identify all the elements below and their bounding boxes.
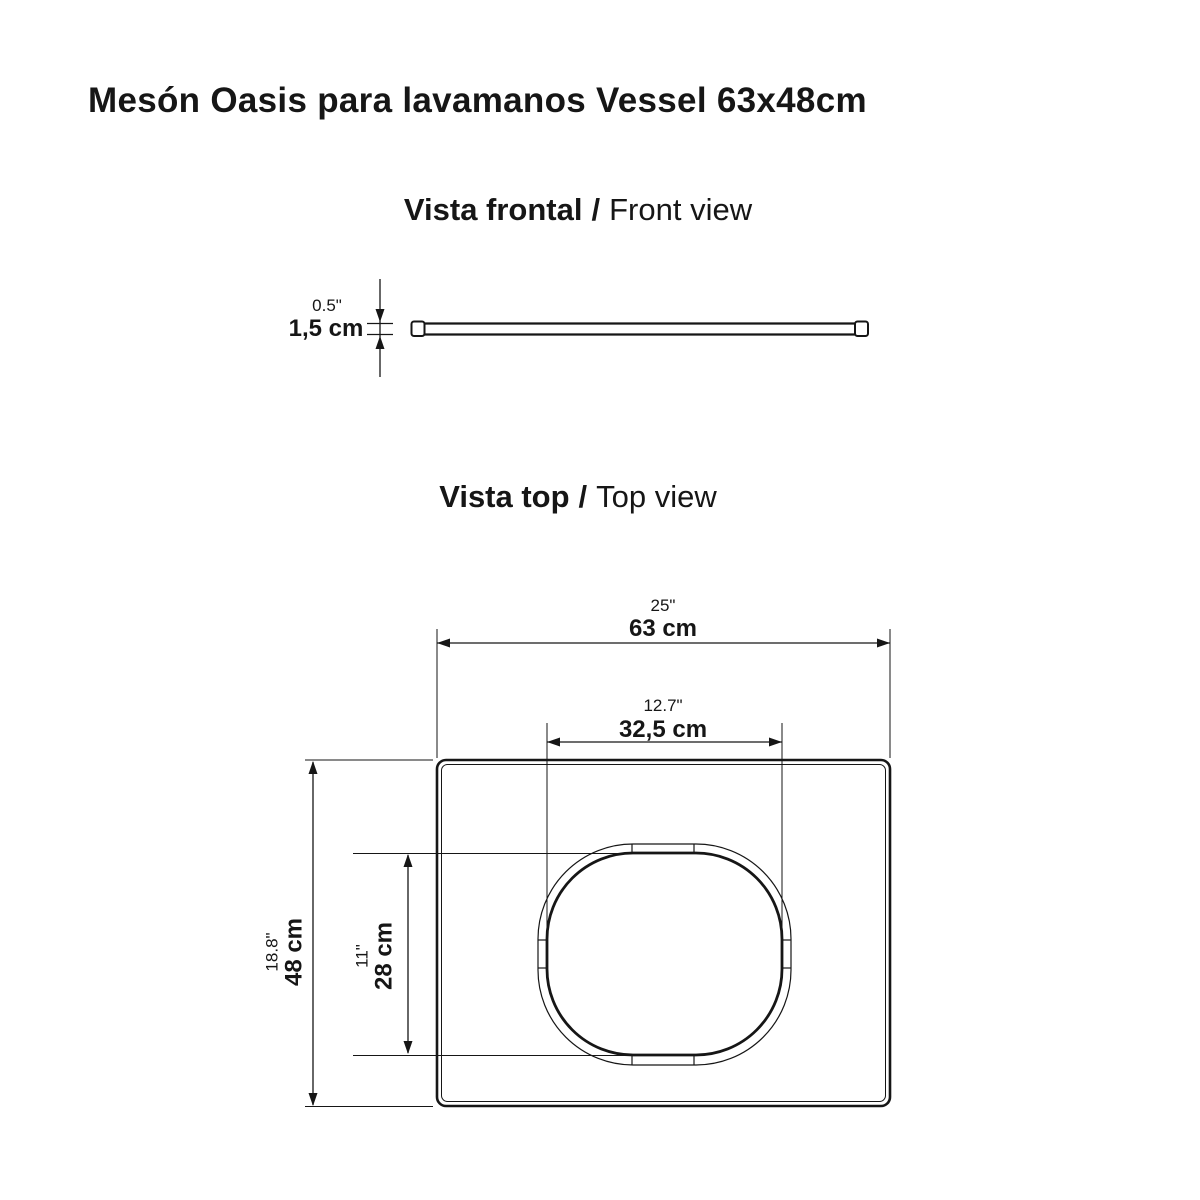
countertop-inner-edge xyxy=(442,765,886,1102)
arrow-down-icon xyxy=(376,309,385,322)
cutout-width-label-inches: 12.7" xyxy=(643,696,682,716)
depth-label-metric: 48 cm xyxy=(282,918,308,986)
arrow-right-icon xyxy=(769,738,782,747)
front-view-drawing xyxy=(367,279,868,377)
width-label-metric: 63 cm xyxy=(629,615,697,643)
slab-right-cap xyxy=(855,322,868,337)
cutout-width-label-metric: 32,5 cm xyxy=(619,716,707,744)
cutout-width-dimension xyxy=(547,723,782,940)
sink-cutout-inner xyxy=(547,853,782,1055)
width-label-inches: 25" xyxy=(651,596,676,616)
diagram-canvas: Mesón Oasis para lavamanos Vessel 63x48c… xyxy=(0,0,1200,1200)
arrow-down-icon xyxy=(309,1093,318,1106)
depth-label: 18.8" 48 cm xyxy=(263,918,308,986)
arrow-up-icon xyxy=(404,854,413,867)
cutout-depth-label-inches: 11" xyxy=(353,922,372,990)
thickness-label-inches: 0.5" xyxy=(312,296,342,316)
arrow-left-icon xyxy=(547,738,560,747)
depth-label-inches: 18.8" xyxy=(263,918,282,986)
arrow-right-icon xyxy=(877,639,890,648)
technical-drawing xyxy=(0,0,1200,1200)
arrow-left-icon xyxy=(437,639,450,648)
thickness-label-metric: 1,5 cm xyxy=(289,315,364,343)
arrow-down-icon xyxy=(404,1041,413,1054)
arrow-up-icon xyxy=(309,761,318,774)
slab-left-cap xyxy=(412,322,425,337)
arrow-up-icon xyxy=(376,336,385,349)
top-view-drawing xyxy=(305,629,890,1107)
cutout-depth-label: 11" 28 cm xyxy=(353,922,398,990)
thickness-dimension xyxy=(367,279,393,377)
cutout-depth-label-metric: 28 cm xyxy=(372,922,398,990)
